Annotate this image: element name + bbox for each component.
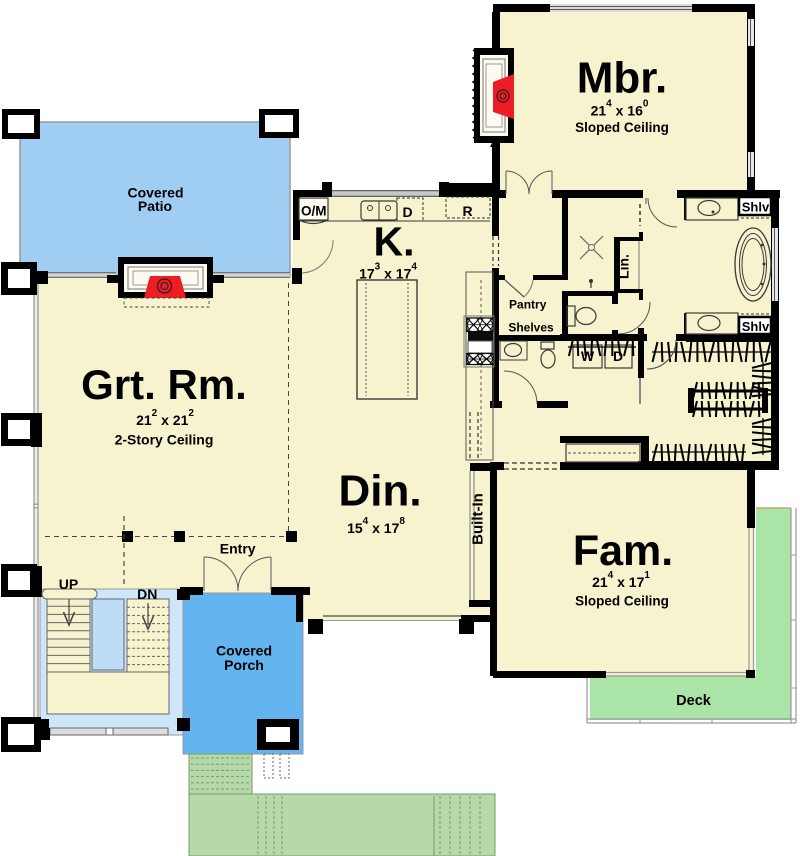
svg-text:Sloped Ceiling: Sloped Ceiling <box>575 593 669 608</box>
svg-text:Shlv: Shlv <box>742 319 770 334</box>
svg-text:Porch: Porch <box>224 657 264 673</box>
svg-text:K.: K. <box>374 219 415 265</box>
svg-text:W: W <box>581 348 595 364</box>
svg-text:Entry: Entry <box>220 540 256 556</box>
svg-text:DN: DN <box>137 586 157 602</box>
svg-text:UP: UP <box>59 576 78 592</box>
svg-text:Fam.: Fam. <box>573 527 673 575</box>
svg-text:2-Story Ceiling: 2-Story Ceiling <box>115 432 214 448</box>
svg-text:Deck: Deck <box>676 693 712 709</box>
svg-text:Mbr.: Mbr. <box>577 54 667 103</box>
svg-text:Sloped Ceiling: Sloped Ceiling <box>575 120 669 135</box>
svg-text:Din.: Din. <box>338 466 421 515</box>
svg-text:Shelves: Shelves <box>508 320 554 334</box>
svg-text:Shlv: Shlv <box>742 200 770 215</box>
svg-text:R: R <box>462 203 472 219</box>
svg-text:Lin.: Lin. <box>616 254 632 279</box>
svg-text:Pantry: Pantry <box>509 298 547 312</box>
svg-text:D: D <box>613 348 623 364</box>
svg-text:O/M: O/M <box>301 204 327 219</box>
svg-text:D: D <box>402 204 412 220</box>
svg-text:Grt. Rm.: Grt. Rm. <box>81 361 247 408</box>
svg-text:Built-In: Built-In <box>470 493 487 545</box>
svg-text:Patio: Patio <box>138 198 172 214</box>
